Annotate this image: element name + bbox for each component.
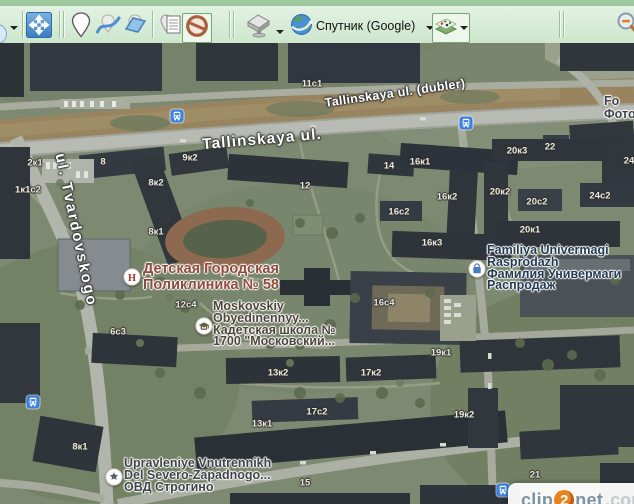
building-number-label: 1к1с2 — [15, 185, 41, 196]
watermark-text: clip — [521, 490, 553, 504]
poi-school-icon — [195, 317, 213, 335]
poi-label: Детская ГородскаяПоликлиника № 58 — [143, 262, 279, 293]
street-label: ul. Tvardovskogo — [51, 152, 100, 308]
cropped-left-button[interactable] — [0, 13, 20, 41]
transit-stop-icon — [460, 117, 473, 130]
fullscreen-button[interactable] — [26, 13, 52, 41]
svg-text:H: H — [128, 273, 136, 284]
watermark-tld: .com — [605, 490, 634, 504]
building-number-label: 24с2 — [589, 191, 610, 202]
download-selection-button[interactable] — [245, 13, 271, 41]
toolbar-separator — [152, 11, 154, 38]
building-number-label: 20с2 — [526, 197, 547, 208]
building-number-label: 2к1 — [27, 158, 42, 169]
poi-police-icon — [105, 468, 123, 486]
building-number-label: 22 — [545, 142, 556, 153]
toolbar-separator — [233, 11, 235, 38]
building-number-label: 20к3 — [507, 146, 528, 157]
building-number-label: 6с3 — [110, 327, 126, 338]
building-number-label: 19к1 — [431, 348, 452, 359]
building-number-label: 17с2 — [306, 407, 327, 418]
watermark-text: net — [575, 490, 603, 504]
building-number-label: 24 — [624, 156, 634, 167]
street-label: Tallinskaya ul. — [202, 126, 323, 154]
building-number-label: 16к1 — [410, 157, 431, 168]
globe-icon — [290, 13, 313, 41]
chevron-down-icon — [276, 30, 284, 34]
watermark-badge: 2 — [554, 490, 574, 504]
toolbar-separator — [59, 11, 61, 38]
add-placemark-button[interactable] — [70, 13, 92, 41]
poi-label: Familiya UnivermagiRasprodazhФамилия Уни… — [487, 245, 621, 292]
layers-icon — [434, 14, 458, 42]
magnifier-minus-icon — [616, 12, 634, 43]
building-number-label: 13к1 — [252, 419, 273, 430]
building-number-label: 13к2 — [268, 368, 289, 379]
building-number-label: 19к2 — [454, 410, 475, 421]
building-number-label: 8к2 — [148, 178, 163, 189]
building-number-label: 16с4 — [373, 298, 394, 309]
circle-icon — [0, 24, 7, 44]
toolbar-separator — [559, 11, 561, 38]
toolbar-separator — [63, 11, 65, 38]
placemark-list-icon — [158, 12, 182, 43]
toolbar-separator — [22, 11, 24, 38]
street-label: Tallinskaya ul. (dubler) — [324, 76, 466, 110]
map-labels-layer: Tallinskaya ul. (dubler)Tallinskaya ul.u… — [0, 43, 634, 504]
poi-shopping-icon — [468, 260, 486, 278]
building-number-label: 16к2 — [437, 192, 458, 203]
placemark-manager-button[interactable] — [157, 13, 183, 41]
building-number-label: 9к2 — [182, 153, 197, 164]
clip2net-watermark: clip2net.com — [508, 483, 634, 504]
building-number-label: 8к1 — [72, 442, 87, 453]
building-number-label: 20к2 — [490, 187, 511, 198]
transit-stop-icon — [27, 396, 40, 409]
zoom-out-button[interactable] — [616, 13, 634, 41]
building-number-label: 16к3 — [422, 238, 443, 249]
hide-placemarks-button[interactable] — [182, 13, 212, 43]
map-source-label: Спутник (Google) — [316, 19, 415, 33]
building-number-label: 12с4 — [175, 300, 196, 311]
building-number-label: 17к2 — [361, 368, 382, 379]
chevron-down-icon — [460, 26, 468, 30]
polygon-icon — [123, 12, 148, 43]
building-number-label: 21 — [530, 470, 541, 481]
app-window: Спутник (Google) — [0, 0, 634, 504]
building-number-label: 16с2 — [388, 207, 409, 218]
main-toolbar: Спутник (Google) — [0, 6, 634, 45]
no-entry-icon — [184, 13, 210, 44]
poi-label: FoФото — [604, 95, 634, 121]
building-number-label: 8к1 — [148, 227, 163, 238]
building-number-label: 20к1 — [520, 225, 541, 236]
transit-stop-icon — [171, 110, 184, 123]
poi-label: Upravleniye VnutrennikhDel Severo-Zapadn… — [124, 458, 271, 493]
toolbar-separator — [563, 11, 565, 38]
building-number-label: 15 — [300, 478, 311, 489]
toolbar-separator — [229, 11, 231, 38]
chevron-down-icon — [10, 26, 18, 30]
path-icon — [96, 12, 121, 43]
map-source-button[interactable] — [289, 13, 313, 41]
poi-hospital-icon: H — [123, 268, 141, 286]
add-path-button[interactable] — [95, 13, 121, 41]
map-viewport[interactable]: Tallinskaya ul. (dubler)Tallinskaya ul.u… — [0, 43, 634, 504]
building-number-label: 8 — [100, 157, 105, 168]
fullscreen-arrows-icon — [26, 12, 52, 43]
cache-fill-icon — [245, 11, 272, 43]
poi-label: MoskovskiyObyedinennyy...Кадетская школа… — [213, 301, 335, 348]
add-polygon-button[interactable] — [122, 13, 148, 41]
building-number-label: 11с1 — [302, 79, 323, 90]
placemark-icon — [71, 12, 91, 43]
building-number-label: 14 — [384, 161, 395, 172]
layers-button[interactable] — [432, 13, 470, 43]
building-number-label: 12 — [300, 181, 311, 192]
